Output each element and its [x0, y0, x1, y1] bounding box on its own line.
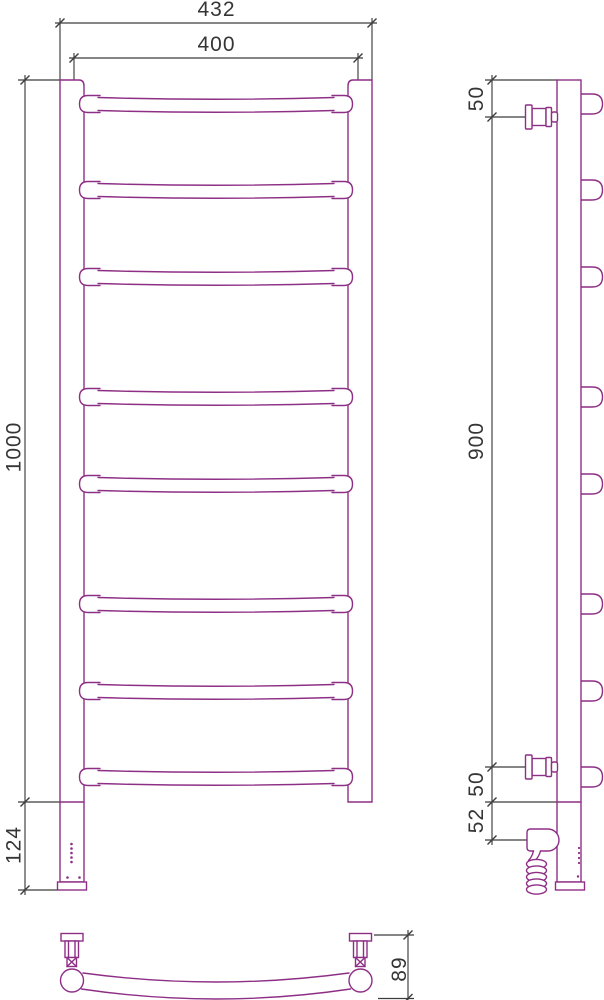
- technical-drawing: 432 400 1000 124 50 900: [0, 0, 604, 1000]
- rail-section-left: [61, 969, 84, 992]
- front-rail-foot: [58, 882, 87, 890]
- bottom-view: 89: [61, 930, 415, 1000]
- rung-cap-right: [332, 769, 353, 786]
- rung-cap-left: [80, 182, 101, 199]
- bottom-dimensions: 89: [374, 930, 414, 1000]
- extension-lines-left: [18, 80, 60, 890]
- dim-label-heater-section: 124: [3, 826, 26, 864]
- side-rungs: [581, 94, 603, 787]
- rung-end-profile: [581, 267, 603, 287]
- rung-cap-left: [80, 96, 101, 113]
- dim-label-valve-span: 900: [465, 422, 488, 460]
- air-valve-bottom: [526, 755, 558, 779]
- rung-cap-right: [332, 476, 353, 493]
- wall-bracket-right: [350, 934, 372, 967]
- side-dimensions: 50 900 50 52: [465, 75, 557, 845]
- rung-cap-right: [332, 182, 353, 199]
- rung-cap-right: [332, 389, 353, 406]
- wall-bracket-left: [61, 934, 83, 967]
- rung-cap-left: [80, 683, 101, 700]
- dim-label-heater-offset: 52: [465, 808, 488, 833]
- rung-end-profile: [581, 681, 603, 701]
- side-rail: [557, 80, 581, 882]
- dim-label-top-valve-offset: 50: [465, 86, 488, 111]
- rung-cap-right: [332, 683, 353, 700]
- curved-rung-section: [82, 973, 351, 999]
- rung-cap-left: [80, 769, 101, 786]
- rung-cap-right: [332, 269, 353, 286]
- rung-end-profile: [581, 767, 603, 787]
- rung-end-profile: [581, 94, 603, 114]
- towel-rail-drawing: 432 400 1000 124 50 900: [0, 0, 604, 1000]
- rung-end-profile: [581, 594, 603, 614]
- front-dimensions: 432 400 1000 124: [3, 0, 378, 895]
- heater-housing: [527, 829, 559, 851]
- rail-section-right: [349, 969, 372, 992]
- rung-end-profile: [581, 474, 603, 494]
- dim-label-inner-width: 400: [197, 33, 235, 56]
- rung-cap-left: [80, 596, 101, 613]
- air-valve-top: [526, 105, 558, 129]
- extension-lines-side: [485, 80, 557, 840]
- dim-label-overall-width: 432: [197, 0, 235, 21]
- rung-cap-right: [332, 596, 353, 613]
- front-rungs: [80, 96, 353, 786]
- dim-label-height: 1000: [3, 422, 26, 473]
- rung-cap-left: [80, 476, 101, 493]
- rung-end-profile: [581, 387, 603, 407]
- rung-cap-right: [332, 96, 353, 113]
- power-cable-coil: [527, 859, 547, 894]
- dim-label-bottom-valve-offset: 50: [465, 771, 488, 796]
- side-view: 50 900 50 52: [465, 75, 603, 894]
- dim-label-depth: 89: [388, 956, 411, 981]
- rung-end-profile: [581, 180, 603, 200]
- front-view: 432 400 1000 124: [3, 0, 378, 895]
- rung-cap-left: [80, 269, 101, 286]
- rung-cap-left: [80, 389, 101, 406]
- side-rail-foot: [556, 882, 585, 890]
